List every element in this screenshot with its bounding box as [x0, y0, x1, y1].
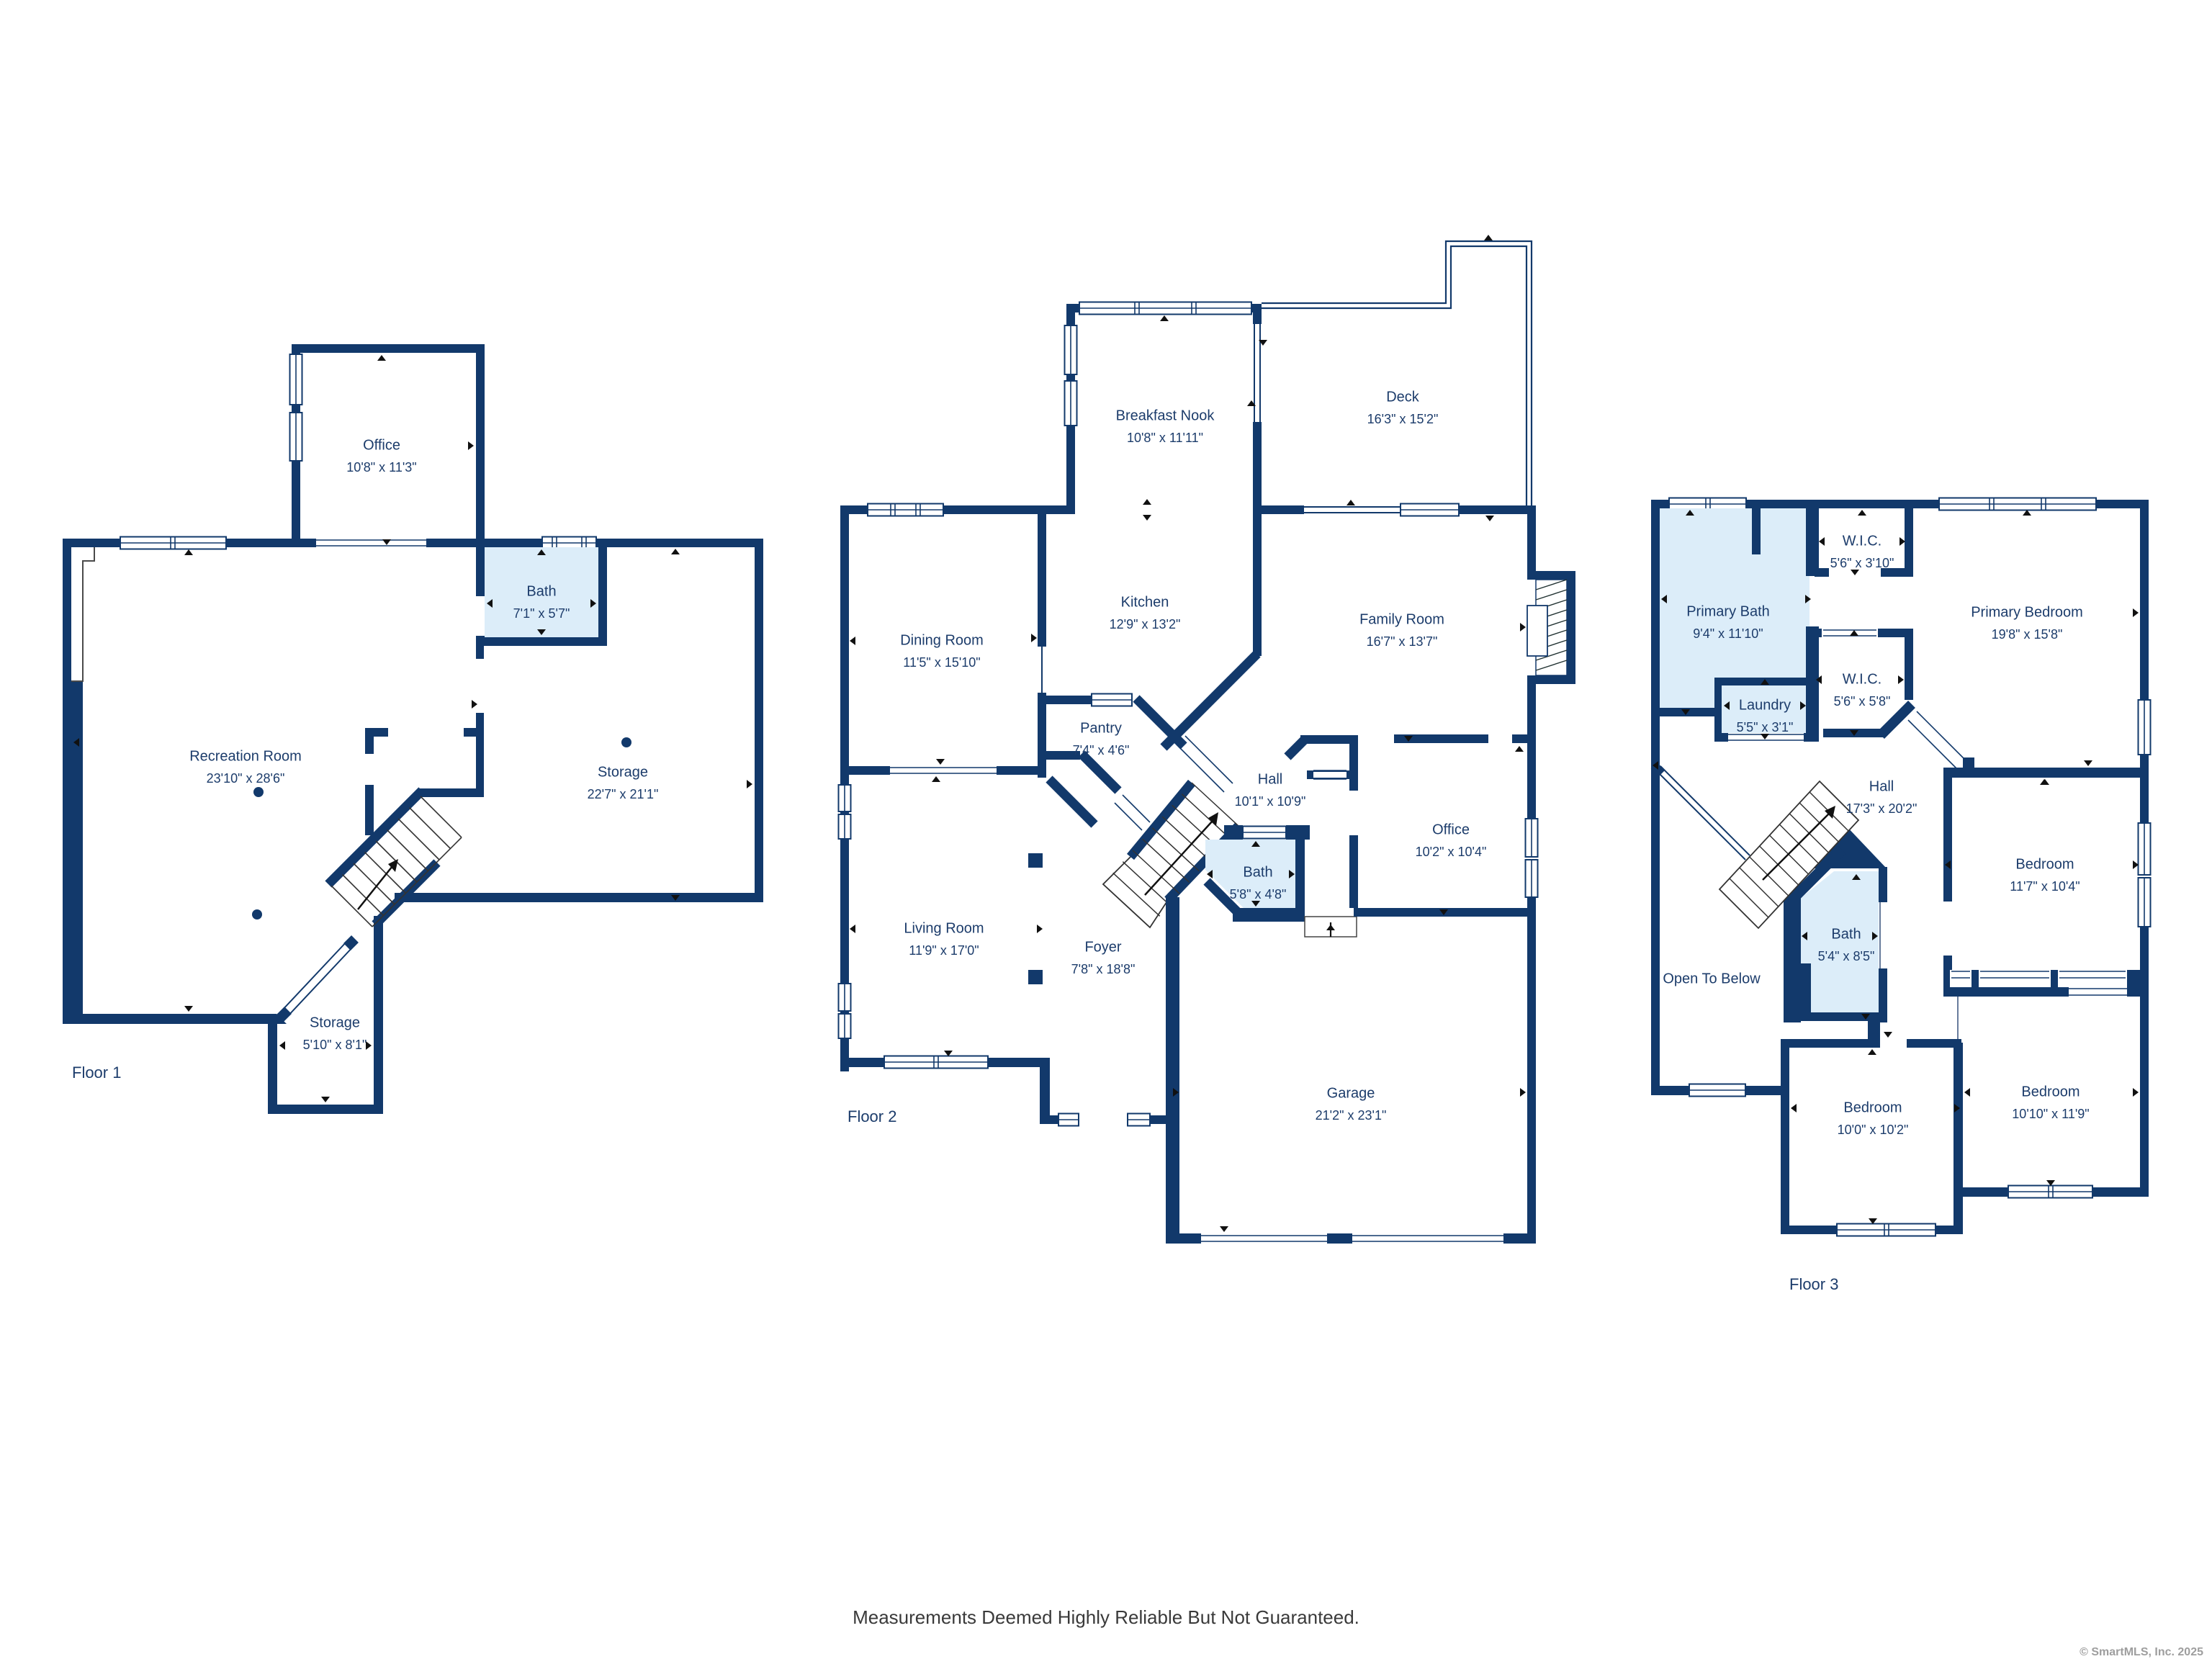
svg-text:Laundry: Laundry [1739, 697, 1791, 713]
svg-text:Garage: Garage [1327, 1085, 1375, 1101]
svg-text:Bedroom: Bedroom [2015, 856, 2074, 872]
svg-text:Foyer: Foyer [1084, 939, 1121, 955]
svg-text:10'1" x 10'9": 10'1" x 10'9" [1235, 794, 1306, 809]
svg-text:19'8" x 15'8": 19'8" x 15'8" [1992, 627, 2063, 642]
svg-text:Bath: Bath [526, 583, 556, 599]
svg-text:Bath: Bath [1831, 926, 1861, 942]
svg-text:Kitchen: Kitchen [1121, 594, 1169, 610]
svg-text:23'10" x 28'6": 23'10" x 28'6" [207, 771, 285, 786]
svg-text:Family Room: Family Room [1359, 611, 1444, 627]
svg-text:5'4" x 8'5": 5'4" x 8'5" [1818, 949, 1875, 963]
svg-text:5'8" x 4'8": 5'8" x 4'8" [1230, 887, 1287, 902]
svg-text:Bedroom: Bedroom [2021, 1084, 2080, 1100]
svg-text:5'5" x 3'1": 5'5" x 3'1" [1737, 720, 1794, 734]
svg-text:11'9" x 17'0": 11'9" x 17'0" [909, 943, 979, 958]
svg-text:16'7" x 13'7": 16'7" x 13'7" [1367, 634, 1438, 649]
svg-text:10'2" x 10'4": 10'2" x 10'4" [1416, 845, 1487, 859]
svg-text:16'3" x 15'2": 16'3" x 15'2" [1367, 412, 1439, 426]
svg-text:11'7" x 10'4": 11'7" x 10'4" [2010, 879, 2080, 894]
svg-text:Recreation Room: Recreation Room [189, 748, 302, 764]
svg-text:10'0" x 10'2": 10'0" x 10'2" [1838, 1123, 1909, 1137]
svg-text:Office: Office [1432, 822, 1470, 837]
svg-text:Floor 2: Floor 2 [848, 1107, 896, 1125]
svg-text:Bath: Bath [1243, 864, 1272, 880]
svg-text:Pantry: Pantry [1080, 720, 1122, 736]
svg-text:Floor 1: Floor 1 [72, 1064, 121, 1082]
svg-text:W.I.C.: W.I.C. [1843, 671, 1881, 687]
svg-text:Office: Office [363, 437, 400, 453]
svg-text:9'4" x 11'10": 9'4" x 11'10" [1693, 626, 1763, 641]
svg-text:7'8" x 18'8": 7'8" x 18'8" [1071, 962, 1136, 976]
svg-text:10'8" x 11'3": 10'8" x 11'3" [346, 460, 416, 475]
svg-text:5'6" x 3'10": 5'6" x 3'10" [1830, 556, 1894, 570]
svg-text:12'9" x 13'2": 12'9" x 13'2" [1110, 617, 1181, 631]
svg-text:Open To Below: Open To Below [1663, 971, 1761, 986]
svg-text:5'6" x 5'8": 5'6" x 5'8" [1834, 694, 1891, 709]
svg-text:Bedroom: Bedroom [1843, 1100, 1902, 1115]
svg-text:21'2" x 23'1": 21'2" x 23'1" [1316, 1108, 1387, 1123]
svg-text:11'5" x 15'10": 11'5" x 15'10" [903, 655, 980, 670]
svg-text:Storage: Storage [310, 1015, 360, 1030]
svg-text:Hall: Hall [1869, 778, 1894, 794]
svg-text:Living Room: Living Room [904, 920, 984, 936]
svg-text:W.I.C.: W.I.C. [1843, 533, 1881, 549]
svg-text:10'10" x 11'9": 10'10" x 11'9" [2012, 1107, 2089, 1121]
svg-text:Breakfast Nook: Breakfast Nook [1116, 408, 1215, 423]
svg-text:Floor 3: Floor 3 [1789, 1275, 1838, 1293]
svg-text:Measurements Deemed Highly Rel: Measurements Deemed Highly Reliable But … [853, 1606, 1359, 1628]
svg-text:Primary Bedroom: Primary Bedroom [1971, 604, 2083, 620]
svg-text:7'1" x 5'7": 7'1" x 5'7" [513, 606, 570, 621]
svg-text:Deck: Deck [1386, 389, 1420, 405]
svg-text:5'10" x 8'1": 5'10" x 8'1" [303, 1038, 367, 1052]
svg-text:7'4" x 4'6": 7'4" x 4'6" [1073, 743, 1130, 757]
svg-text:17'3" x 20'2": 17'3" x 20'2" [1846, 801, 1917, 816]
svg-text:Dining Room: Dining Room [900, 632, 984, 648]
svg-text:22'7" x 21'1": 22'7" x 21'1" [588, 787, 659, 801]
svg-text:Hall: Hall [1258, 771, 1282, 787]
svg-text:Primary Bath: Primary Bath [1686, 603, 1770, 619]
svg-text:© SmartMLS, Inc. 2025: © SmartMLS, Inc. 2025 [2080, 1646, 2203, 1658]
svg-text:Storage: Storage [598, 764, 648, 780]
svg-text:10'8" x 11'11": 10'8" x 11'11" [1127, 431, 1203, 445]
